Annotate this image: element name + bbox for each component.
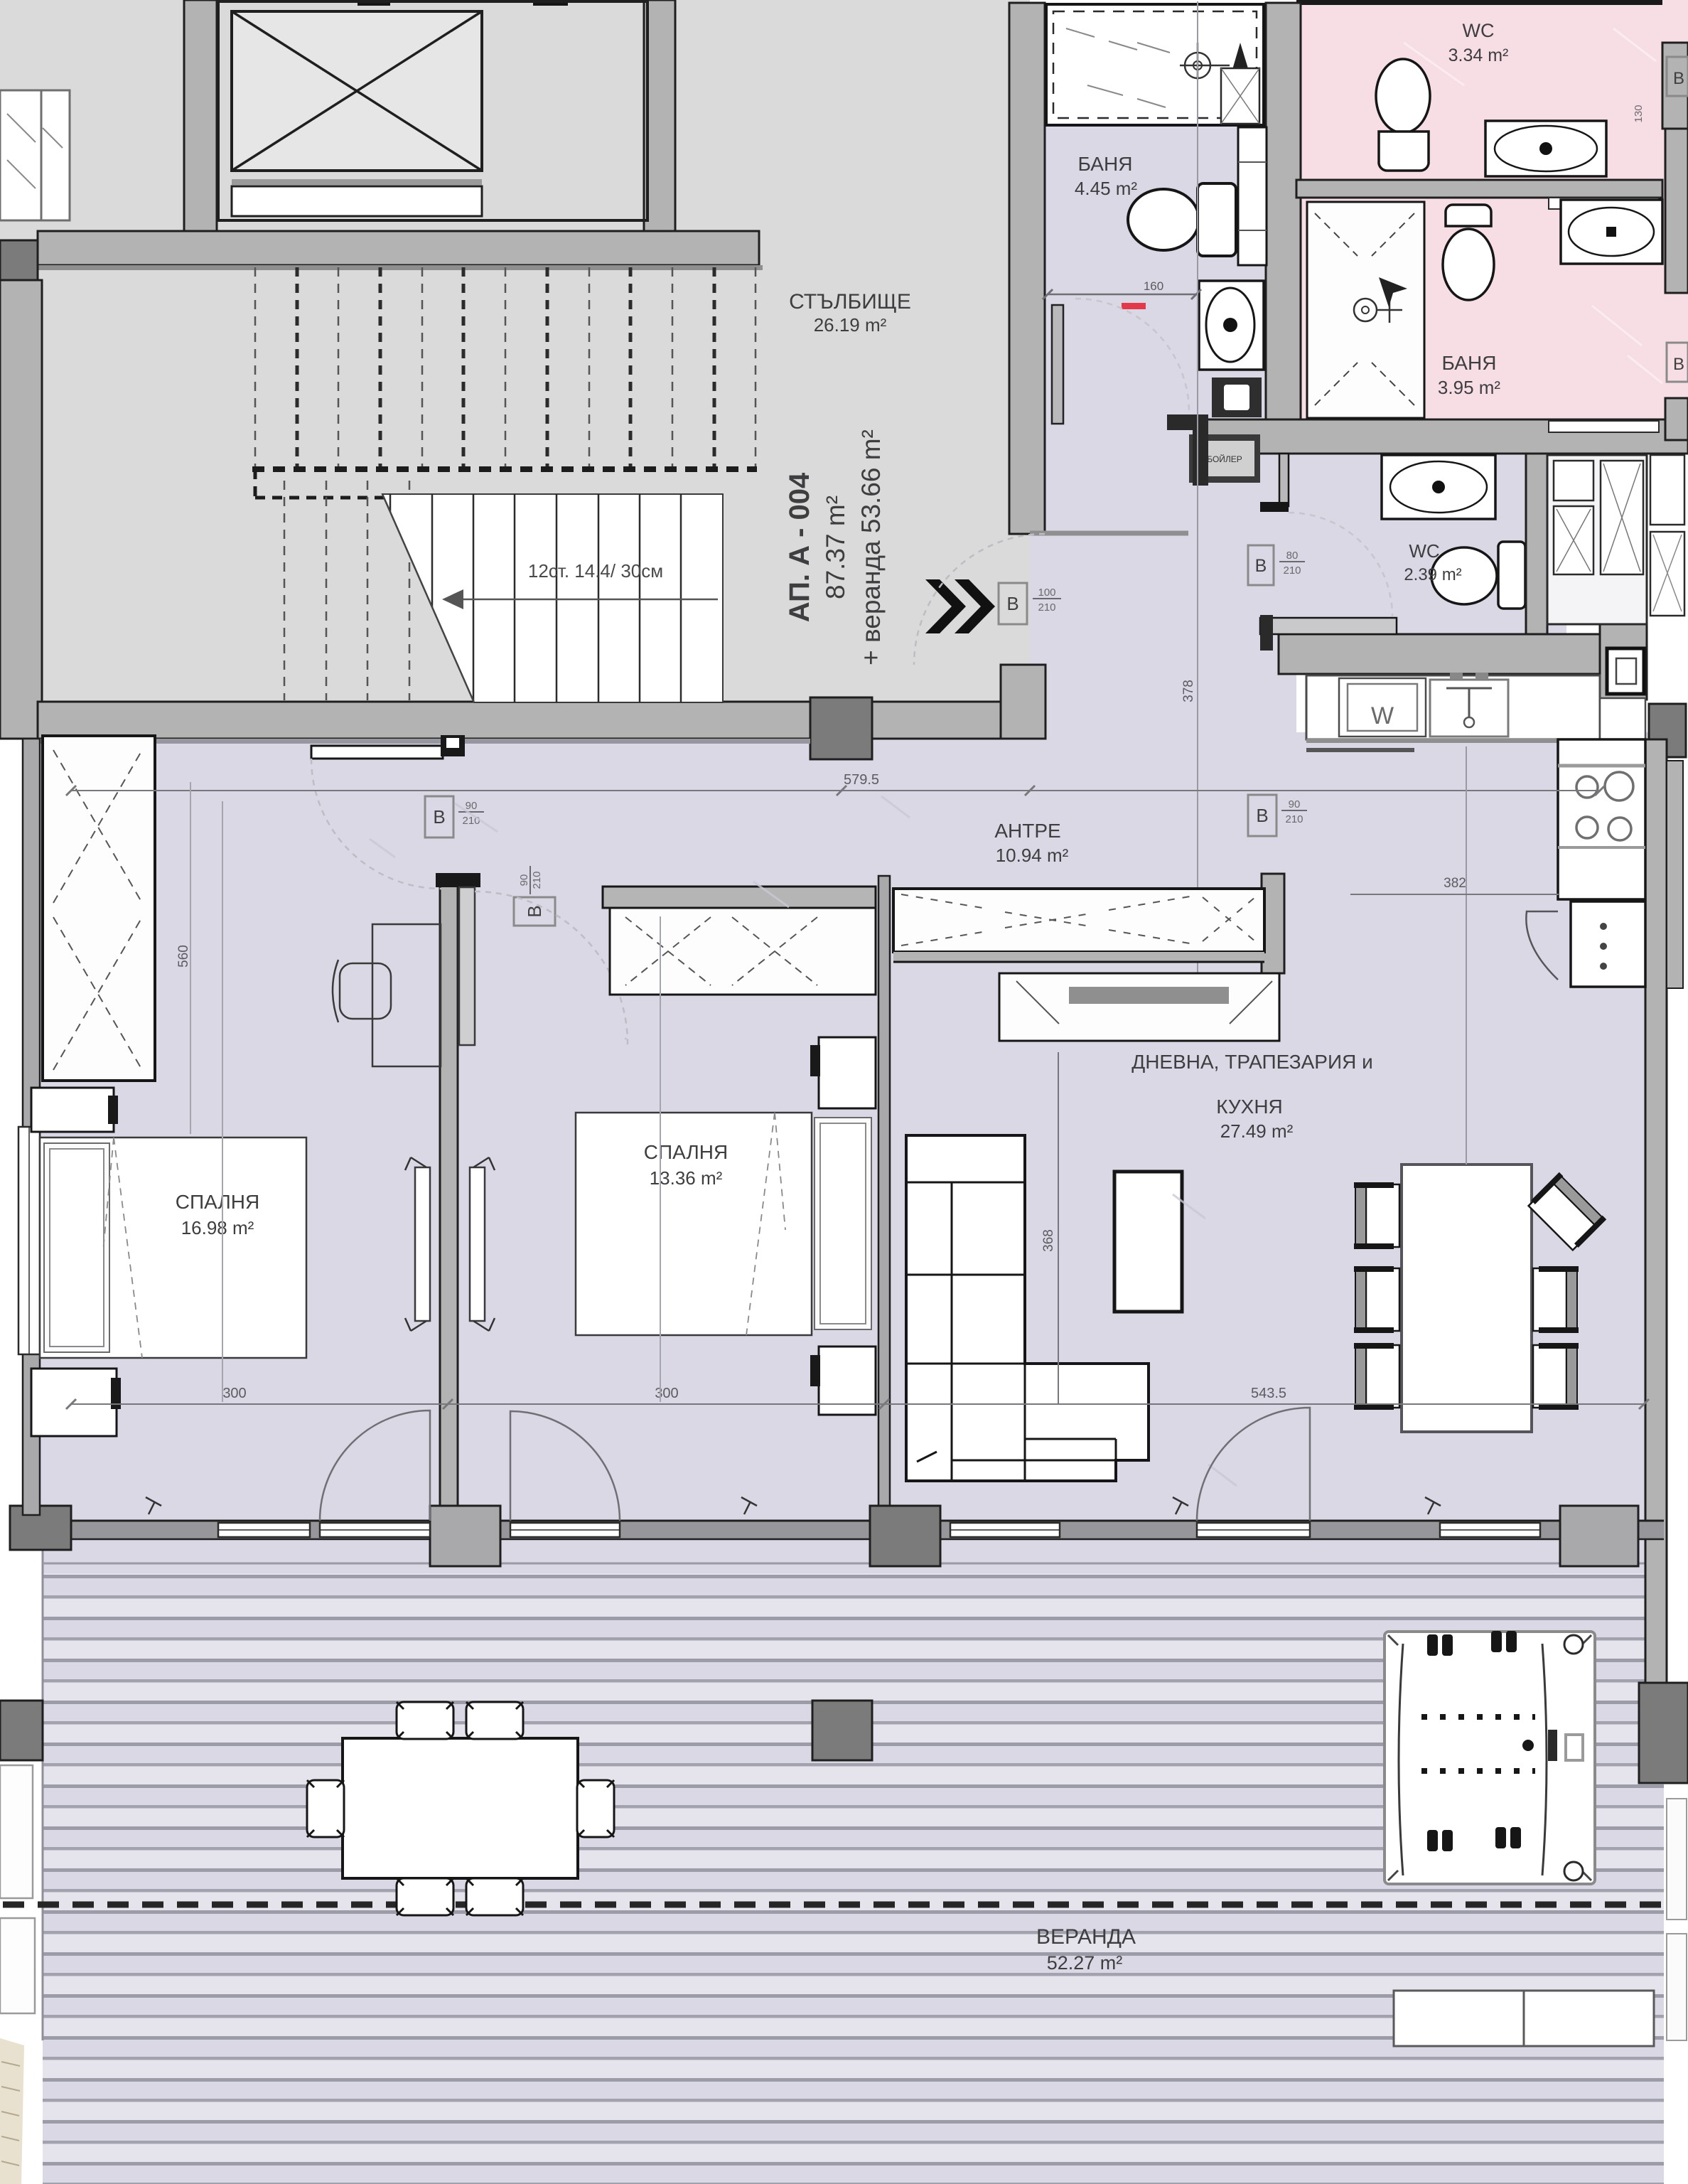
svg-text:4.45 m²: 4.45 m²: [1075, 178, 1137, 199]
svg-text:АНТРЕ: АНТРЕ: [994, 820, 1060, 842]
svg-text:СПАЛНЯ: СПАЛНЯ: [644, 1141, 728, 1163]
svg-text:10.94 m²: 10.94 m²: [996, 845, 1069, 866]
svg-text:В: В: [433, 806, 445, 828]
svg-text:160: 160: [1144, 279, 1163, 293]
svg-text:210: 210: [1038, 601, 1055, 614]
svg-text:210: 210: [1285, 813, 1303, 825]
svg-text:СТЪЛБИЩЕ: СТЪЛБИЩЕ: [789, 290, 911, 314]
svg-text:80: 80: [1286, 550, 1299, 562]
svg-text:300: 300: [655, 1386, 678, 1401]
svg-text:90: 90: [466, 800, 478, 812]
svg-text:579.5: 579.5: [844, 772, 879, 788]
svg-text:560: 560: [176, 945, 191, 968]
svg-text:СПАЛНЯ: СПАЛНЯ: [176, 1191, 259, 1213]
svg-text:В: В: [1673, 69, 1684, 88]
svg-text:16.98 m²: 16.98 m²: [181, 1217, 254, 1238]
svg-text:12ст. 14.4/ 30см: 12ст. 14.4/ 30см: [528, 560, 663, 582]
svg-text:ВЕРАНДА: ВЕРАНДА: [1036, 1925, 1136, 1949]
svg-text:3.34 m²: 3.34 m²: [1448, 45, 1509, 65]
svg-text:В: В: [1255, 556, 1267, 576]
svg-text:WC: WC: [1463, 20, 1495, 41]
svg-text:27.49 m²: 27.49 m²: [1220, 1120, 1294, 1142]
svg-text:87.37 m²: 87.37 m²: [821, 496, 850, 599]
svg-text:W: W: [1371, 702, 1394, 729]
svg-text:3.95 m²: 3.95 m²: [1438, 377, 1500, 398]
svg-text:543.5: 543.5: [1251, 1386, 1286, 1401]
svg-text:БАНЯ: БАНЯ: [1078, 153, 1133, 175]
svg-text:БОЙЛЕР: БОЙЛЕР: [1207, 454, 1242, 464]
svg-text:100: 100: [1038, 587, 1055, 599]
svg-text:В: В: [1673, 355, 1684, 374]
svg-text:АП. А - 004: АП. А - 004: [784, 472, 815, 622]
svg-text:WC: WC: [1409, 540, 1439, 562]
svg-text:90: 90: [1289, 798, 1301, 810]
svg-text:КУХНЯ: КУХНЯ: [1216, 1096, 1283, 1118]
svg-text:210: 210: [531, 871, 543, 889]
svg-text:52.27 m²: 52.27 m²: [1047, 1952, 1123, 1974]
svg-text:130: 130: [1633, 105, 1645, 122]
svg-text:378: 378: [1181, 680, 1196, 702]
svg-text:210: 210: [1283, 564, 1301, 577]
svg-text:210: 210: [462, 815, 480, 827]
svg-text:ДНЕВНА, ТРАПЕЗАРИЯ и: ДНЕВНА, ТРАПЕЗАРИЯ и: [1131, 1051, 1372, 1073]
svg-text:В: В: [1006, 593, 1018, 614]
svg-text:26.19 m²: 26.19 m²: [814, 314, 887, 336]
svg-text:БАНЯ: БАНЯ: [1442, 352, 1497, 374]
svg-text:382: 382: [1444, 876, 1466, 891]
svg-text:368: 368: [1041, 1229, 1056, 1252]
svg-text:2.39 m²: 2.39 m²: [1404, 565, 1461, 584]
svg-text:90: 90: [518, 874, 530, 887]
svg-text:300: 300: [222, 1386, 246, 1401]
svg-text:+ веранда 53.66 m²: + веранда 53.66 m²: [856, 429, 886, 665]
svg-text:В: В: [1256, 805, 1268, 826]
